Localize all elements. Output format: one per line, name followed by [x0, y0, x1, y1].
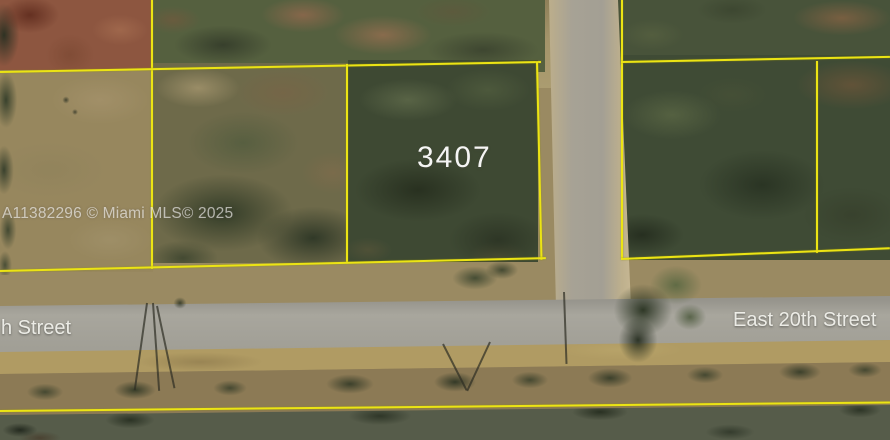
tree-row-left-edge	[0, 60, 26, 275]
street-label-left: h Street	[1, 317, 71, 340]
parcel-number-label: 3407	[417, 141, 492, 175]
parcel-line-east-divider	[816, 61, 818, 253]
mls-watermark: A11382296 © Miami MLS© 2025	[2, 205, 233, 223]
parcel-line-divider-center	[346, 64, 348, 262]
parcel-lot-east	[612, 55, 890, 260]
terrain-topright-trees	[612, 0, 890, 62]
satellite-map[interactable]: 3407 h Street East 20th Street A11382296…	[0, 0, 890, 440]
parcel-lot-west	[153, 63, 348, 263]
bush-near-road	[430, 256, 525, 304]
parcel-line-east-left	[621, 0, 623, 258]
parcel-line-vertical-left	[151, 0, 153, 269]
small-tree-dot	[168, 292, 192, 314]
tree-at-intersection	[598, 255, 710, 367]
street-label-right: East 20th Street	[733, 309, 876, 332]
